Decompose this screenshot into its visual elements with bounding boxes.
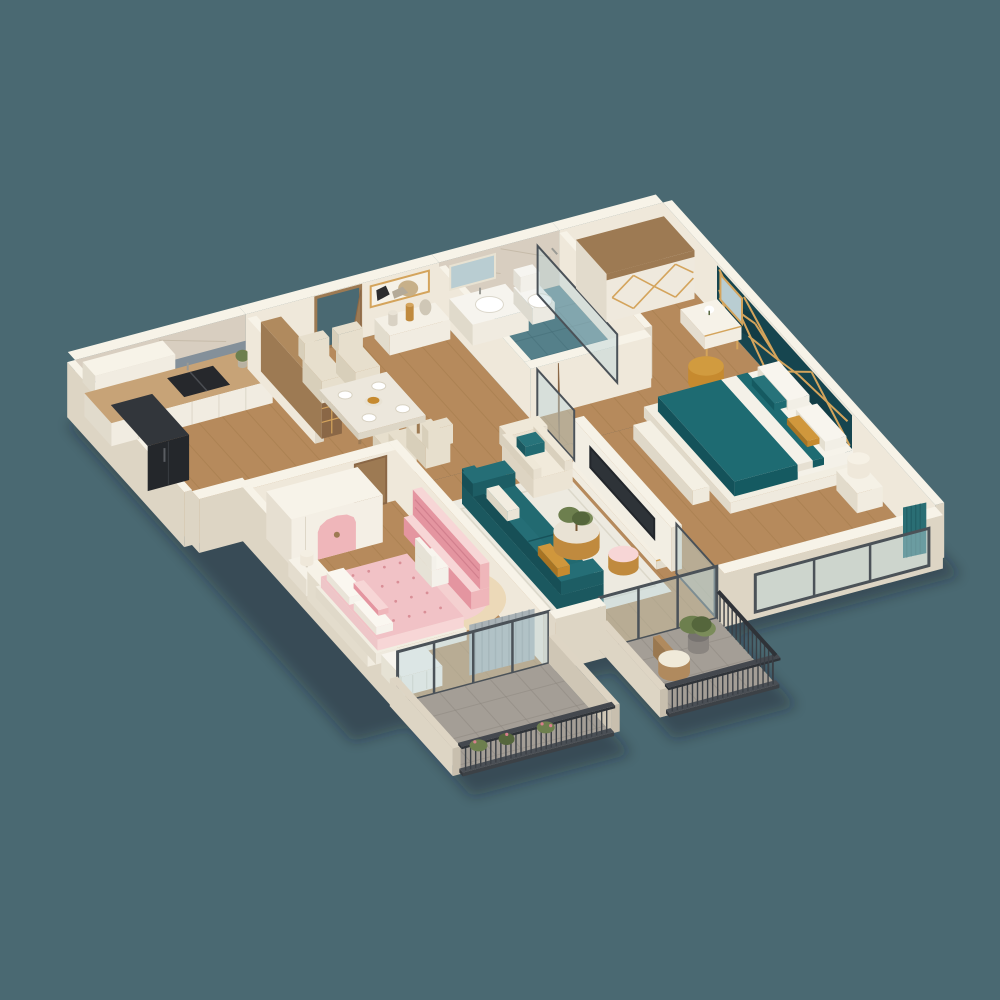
table-lamp bbox=[847, 452, 869, 479]
apartment-scene bbox=[0, 0, 1000, 1000]
floorplan-3d-render bbox=[0, 0, 1000, 1000]
